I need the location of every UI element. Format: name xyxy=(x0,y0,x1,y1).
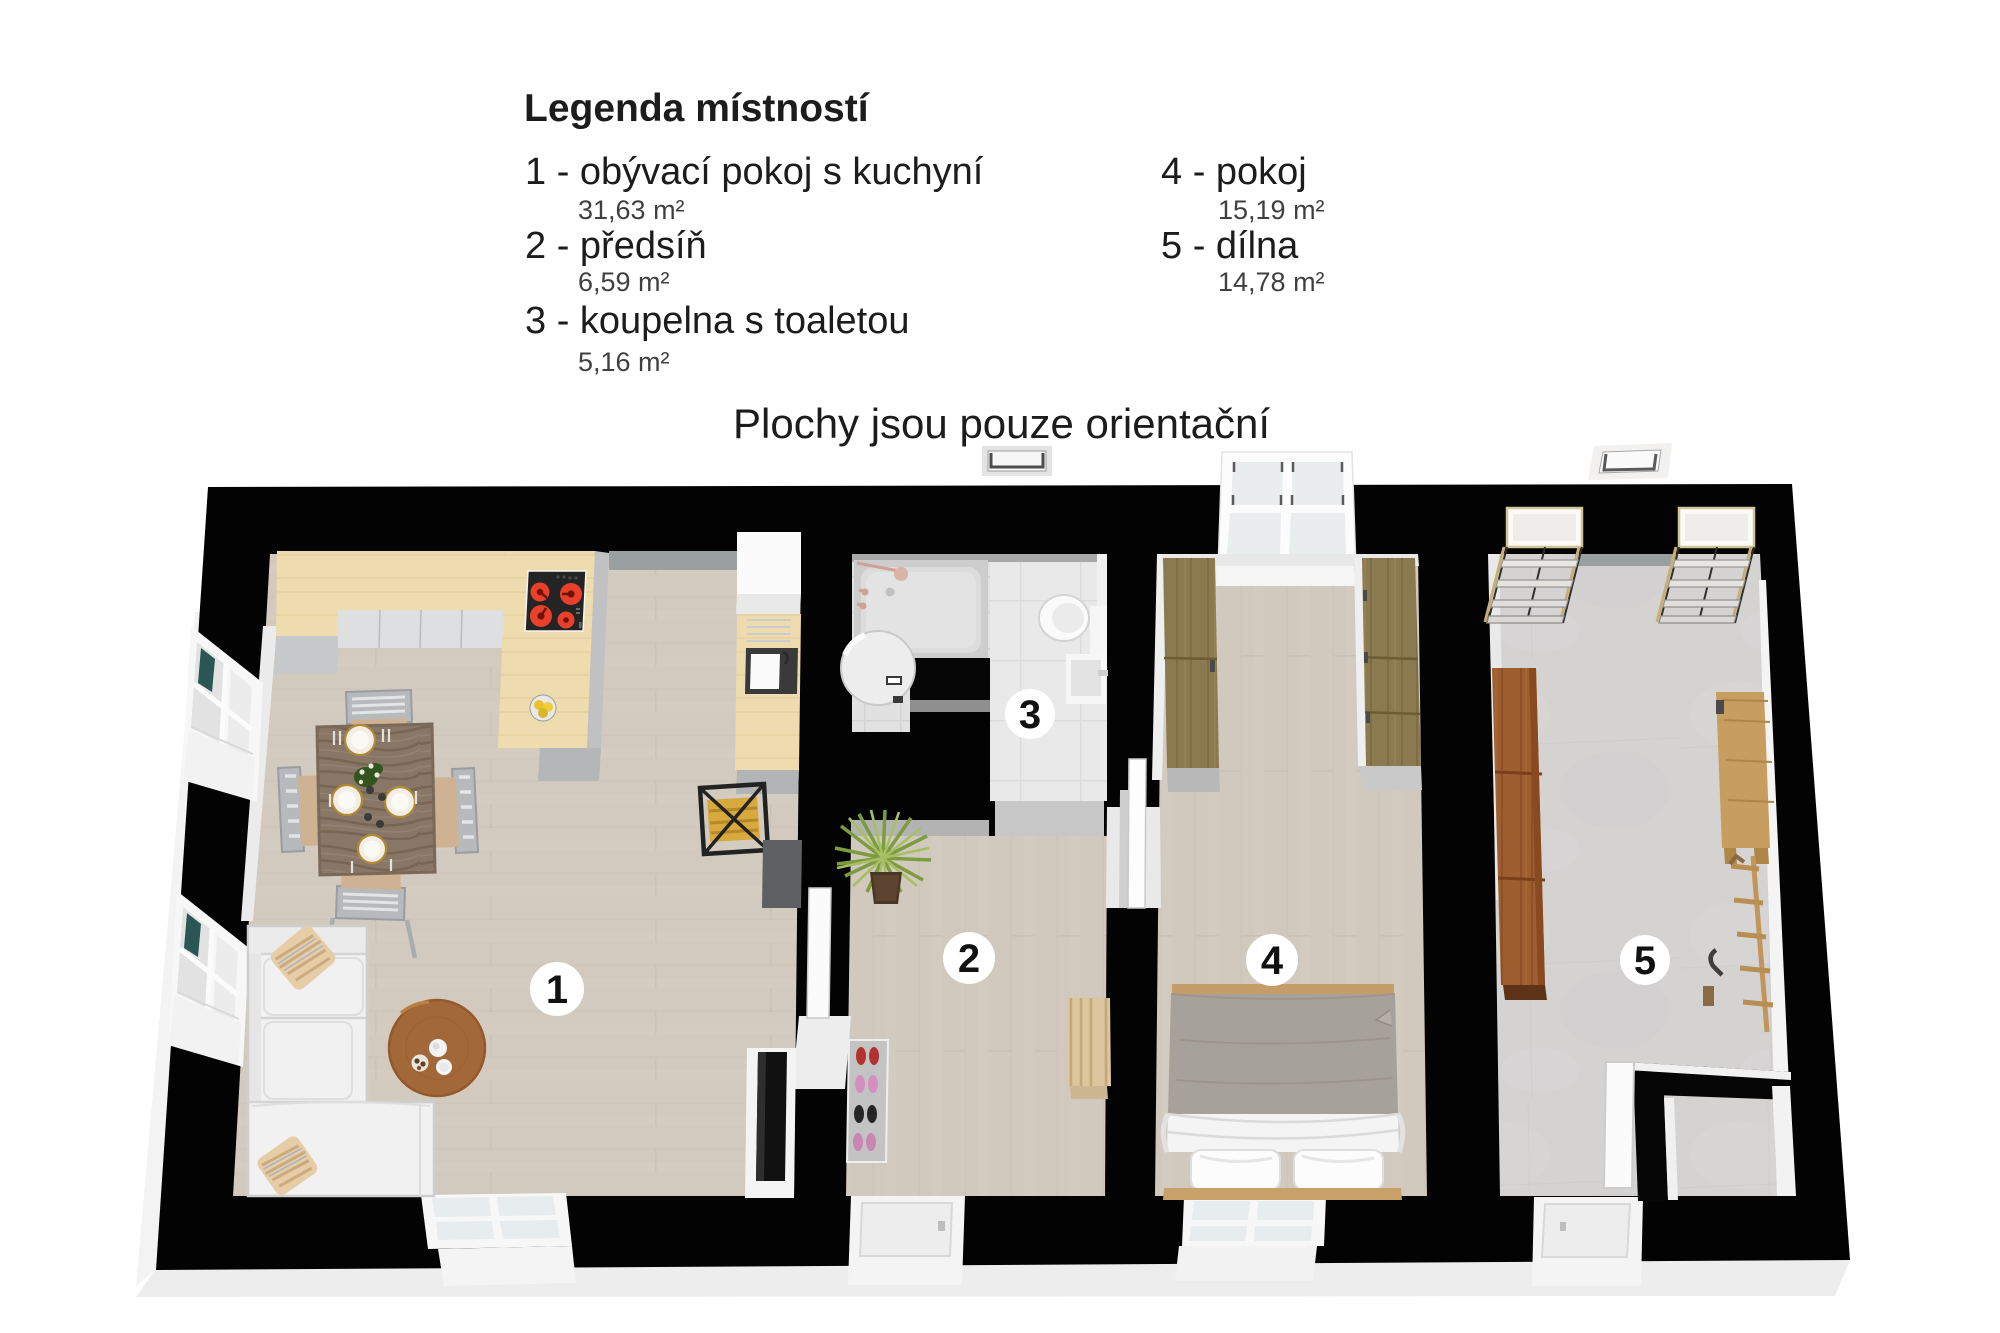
svg-text:4: 4 xyxy=(1261,939,1284,983)
svg-text:3: 3 xyxy=(1019,693,1041,737)
svg-text:5: 5 xyxy=(1634,939,1656,983)
svg-text:2: 2 xyxy=(958,937,980,981)
svg-text:1: 1 xyxy=(546,968,568,1012)
